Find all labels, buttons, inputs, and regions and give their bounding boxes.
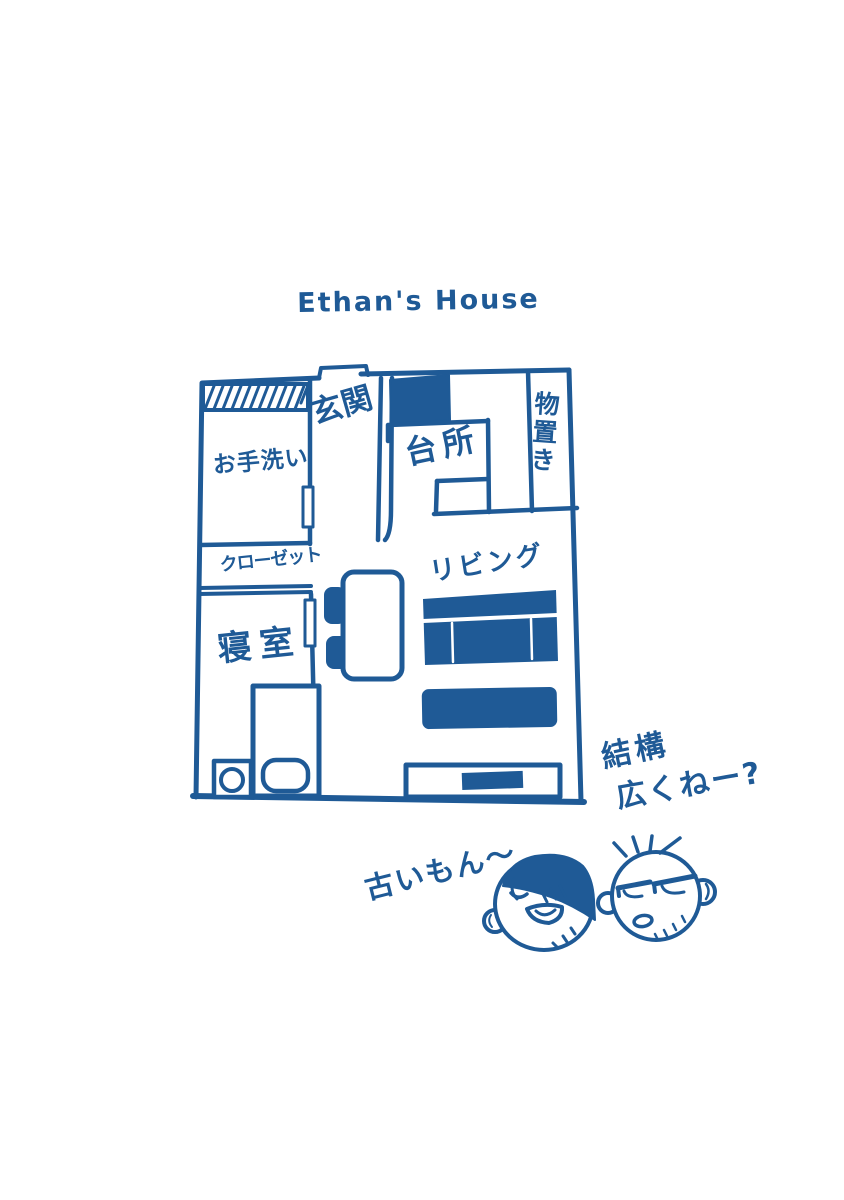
right-face-mouth bbox=[633, 914, 653, 928]
kitchen-stove bbox=[390, 375, 450, 424]
bed bbox=[253, 686, 319, 796]
unimpressed-face bbox=[598, 836, 715, 940]
dining-table bbox=[343, 572, 402, 679]
hatch-lines bbox=[205, 386, 307, 409]
hatched-wall bbox=[203, 384, 308, 410]
low-table bbox=[422, 687, 558, 729]
room-label-bedroom: 寝室 bbox=[216, 624, 303, 667]
tv bbox=[462, 771, 524, 790]
closet-walls bbox=[199, 586, 311, 594]
tv-stand bbox=[406, 765, 560, 797]
floor-plan-drawing bbox=[0, 0, 844, 1200]
room-label-storage: 物置き bbox=[528, 390, 559, 476]
bedroom-door bbox=[305, 600, 315, 646]
sofa bbox=[423, 590, 558, 665]
sketch-page: Ethan's House 玄関 お手洗い クローゼット 寝室 台所 物置き リ… bbox=[0, 0, 844, 1200]
washing-machine bbox=[214, 761, 251, 797]
page-title: Ethan's House bbox=[297, 286, 540, 317]
bed-pillow bbox=[263, 760, 308, 791]
toilet-door bbox=[303, 487, 313, 527]
right-face-head bbox=[612, 852, 700, 940]
